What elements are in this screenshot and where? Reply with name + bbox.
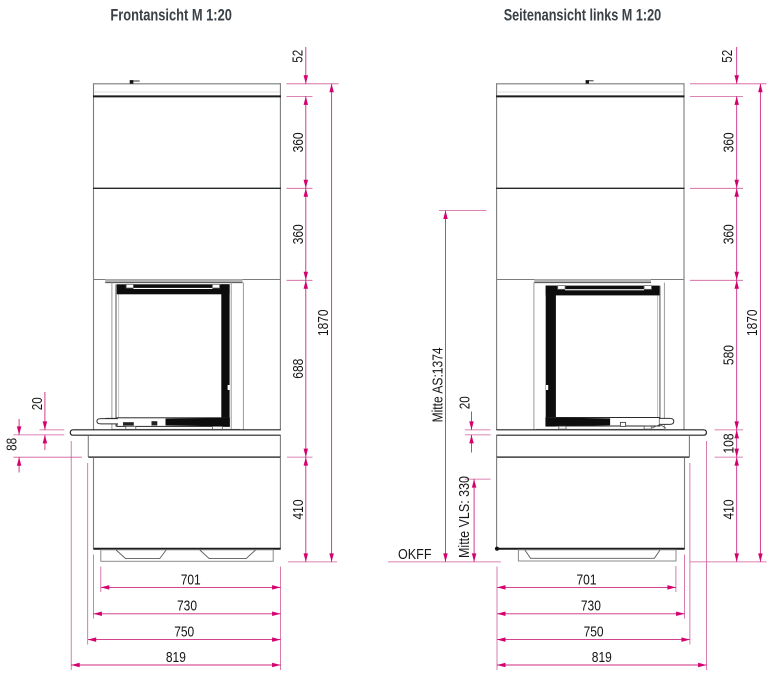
svg-text:1870: 1870 <box>315 310 332 337</box>
svg-text:108: 108 <box>721 434 738 454</box>
svg-text:20: 20 <box>457 396 474 409</box>
svg-text:688: 688 <box>290 359 307 379</box>
svg-text:88: 88 <box>3 438 20 451</box>
svg-text:360: 360 <box>721 132 738 152</box>
svg-text:701: 701 <box>181 571 201 588</box>
svg-text:Mitte VLS: 330: Mitte VLS: 330 <box>456 476 473 558</box>
svg-text:730: 730 <box>177 598 197 615</box>
svg-text:819: 819 <box>166 649 186 666</box>
svg-text:360: 360 <box>290 224 307 244</box>
svg-text:Mitte AS:1374: Mitte AS:1374 <box>429 347 446 422</box>
svg-text:750: 750 <box>584 624 604 641</box>
svg-text:1870: 1870 <box>744 310 761 337</box>
svg-text:410: 410 <box>721 500 738 520</box>
svg-text:701: 701 <box>577 571 597 588</box>
svg-text:OKFF: OKFF <box>398 546 432 563</box>
svg-text:Frontansicht M 1:20: Frontansicht M 1:20 <box>110 6 231 25</box>
svg-text:580: 580 <box>721 345 738 365</box>
svg-text:750: 750 <box>174 624 194 641</box>
svg-text:20: 20 <box>29 397 46 410</box>
svg-text:360: 360 <box>721 224 738 244</box>
svg-text:Seitenansicht links M 1:20: Seitenansicht links M 1:20 <box>504 6 662 25</box>
svg-text:360: 360 <box>290 132 307 152</box>
svg-text:52: 52 <box>719 50 736 63</box>
svg-text:410: 410 <box>290 500 307 520</box>
svg-text:52: 52 <box>290 50 307 63</box>
svg-text:819: 819 <box>592 649 612 666</box>
svg-text:730: 730 <box>581 598 601 615</box>
